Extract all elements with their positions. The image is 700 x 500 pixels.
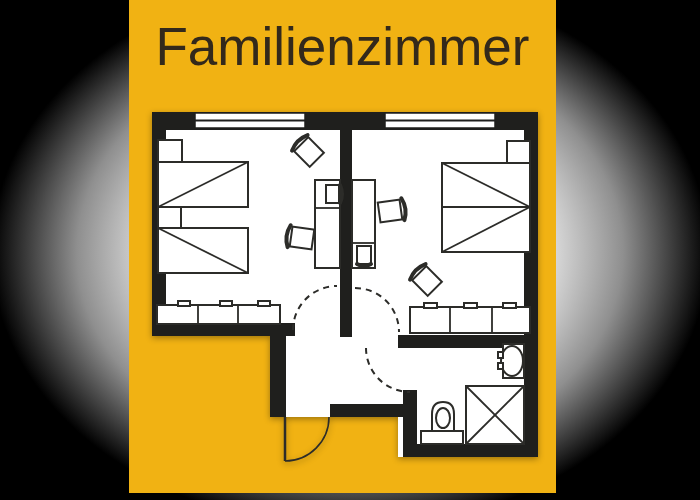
floor-plan bbox=[0, 0, 700, 500]
single-bed-icon-2 bbox=[158, 228, 248, 273]
wall-divider bbox=[340, 125, 352, 337]
entrance-door-icon bbox=[285, 417, 329, 461]
wardrobe-icon bbox=[410, 303, 530, 333]
wall-bathroom-bottom bbox=[403, 444, 538, 457]
double-bed-icon bbox=[442, 163, 530, 252]
single-bed-icon-1 bbox=[158, 162, 248, 207]
nightstand-icon bbox=[158, 207, 181, 228]
window-icon-left bbox=[195, 113, 305, 128]
chair-icon-tucked bbox=[357, 246, 371, 266]
wall-hallway-left bbox=[270, 323, 286, 417]
window-icon-right bbox=[385, 113, 495, 128]
shower-icon bbox=[466, 386, 524, 444]
nightstand-icon bbox=[158, 140, 182, 162]
wardrobe-icon bbox=[157, 301, 280, 324]
nightstand-icon bbox=[507, 141, 530, 163]
poster: Familienzimmer bbox=[0, 0, 700, 500]
chair-icon-tucked bbox=[326, 185, 342, 203]
wall-hallway-bottom bbox=[330, 404, 410, 417]
